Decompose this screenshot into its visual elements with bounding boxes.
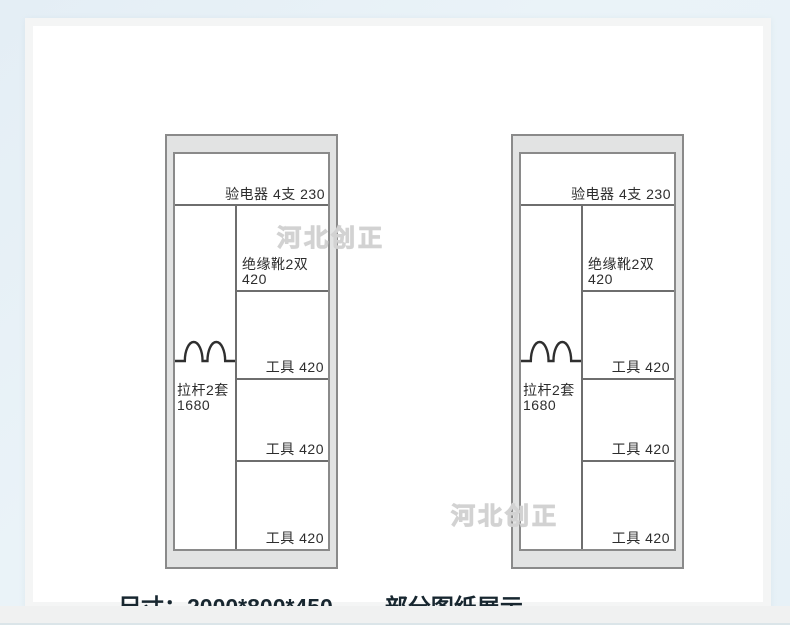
pull-rod-hooks-icon bbox=[521, 337, 581, 363]
tool-compartment-label: 工具 420 bbox=[266, 442, 324, 457]
cabinet-interior: 验电器 4支 230 拉杆2套 1680 绝缘靴2双 420 bbox=[519, 152, 676, 551]
tool-compartment-label: 工具 420 bbox=[612, 360, 670, 375]
tool-compartment: 工具 420 bbox=[237, 380, 328, 462]
tool-compartment: 工具 420 bbox=[583, 462, 674, 549]
top-shelf-label: 验电器 4支 230 bbox=[225, 187, 325, 202]
tool-compartment: 工具 420 bbox=[583, 292, 674, 380]
shelf-column: 绝缘靴2双 420 工具 420 工具 420 工具 420 bbox=[237, 206, 328, 549]
tool-compartment: 工具 420 bbox=[237, 292, 328, 380]
pull-rod-label-line1: 拉杆2套 bbox=[177, 383, 229, 398]
brand-watermark: 河北创正 bbox=[277, 218, 385, 253]
product-image-card: 验电器 4支 230 拉杆2套 1680 绝缘靴2双 420 bbox=[25, 18, 771, 610]
tool-compartment: 工具 420 bbox=[583, 380, 674, 462]
boots-compartment: 绝缘靴2双 420 bbox=[583, 206, 674, 292]
boots-label-line1: 绝缘靴2双 bbox=[588, 257, 674, 272]
cabinet-interior: 验电器 4支 230 拉杆2套 1680 绝缘靴2双 420 bbox=[173, 152, 330, 551]
pull-rod-label-line2: 1680 bbox=[523, 398, 575, 413]
tool-compartment-label: 工具 420 bbox=[266, 531, 324, 546]
pull-rod-label: 拉杆2套 1680 bbox=[523, 383, 575, 413]
page-bottom-strip bbox=[0, 606, 790, 625]
top-shelf-label: 验电器 4支 230 bbox=[571, 187, 671, 202]
tool-compartment-label: 工具 420 bbox=[266, 360, 324, 375]
boots-label-line2: 420 bbox=[588, 272, 674, 287]
pull-rod-label: 拉杆2套 1680 bbox=[177, 383, 229, 413]
pull-rod-hooks-icon bbox=[175, 337, 235, 363]
product-page: { "page": { "background_color": "#e9f2f7… bbox=[0, 0, 790, 625]
pull-rod-label-line1: 拉杆2套 bbox=[523, 383, 575, 398]
pull-rod-compartment: 拉杆2套 1680 bbox=[175, 206, 237, 549]
shelf-column: 绝缘靴2双 420 工具 420 工具 420 工具 420 bbox=[583, 206, 674, 549]
tool-compartment: 工具 420 bbox=[237, 462, 328, 549]
pull-rod-label-line2: 1680 bbox=[177, 398, 229, 413]
tool-compartment-label: 工具 420 bbox=[612, 442, 670, 457]
tool-compartment-label: 工具 420 bbox=[612, 531, 670, 546]
cabinet-body: 拉杆2套 1680 绝缘靴2双 420 工具 420 工具 420 bbox=[175, 206, 328, 549]
cabinet-diagram-left: 验电器 4支 230 拉杆2套 1680 绝缘靴2双 420 bbox=[165, 134, 338, 569]
boots-label-line1: 绝缘靴2双 bbox=[242, 257, 328, 272]
top-shelf: 验电器 4支 230 bbox=[175, 154, 328, 206]
top-shelf: 验电器 4支 230 bbox=[521, 154, 674, 206]
brand-watermark: 河北创正 bbox=[451, 496, 559, 531]
boots-label-line2: 420 bbox=[242, 272, 328, 287]
